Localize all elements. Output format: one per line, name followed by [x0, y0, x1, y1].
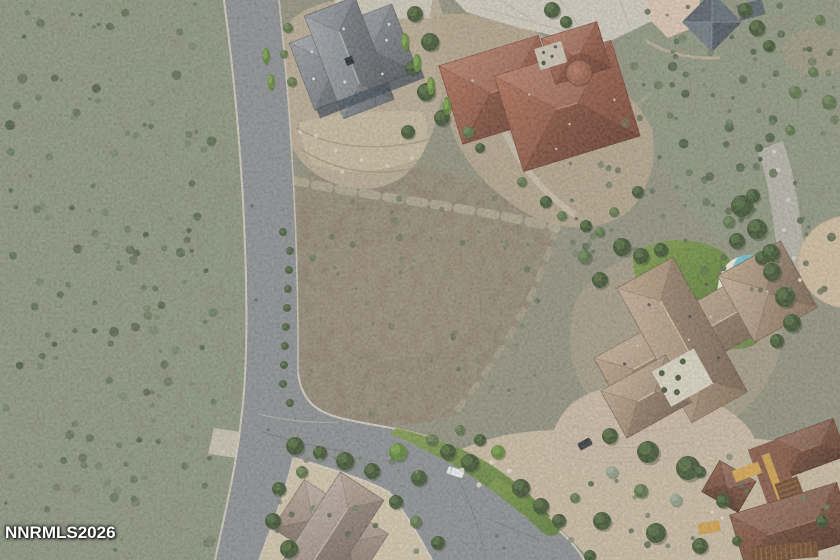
watermark: NNRMLS2026 — [5, 523, 116, 543]
grain-light — [0, 0, 840, 560]
aerial-photo: NNRMLS2026 — [0, 0, 840, 560]
aerial-scene — [0, 0, 840, 560]
